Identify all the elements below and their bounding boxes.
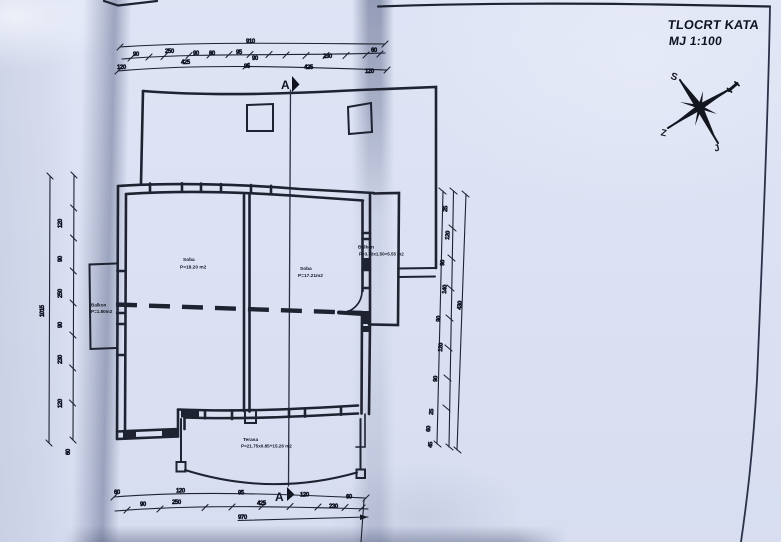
svg-text:Soba: Soba [183, 257, 195, 263]
svg-text:TLOCRT KATA: TLOCRT KATA [667, 17, 760, 32]
svg-text:A: A [281, 78, 290, 92]
svg-text:120: 120 [300, 493, 310, 499]
svg-text:MJ 1:100: MJ 1:100 [668, 34, 723, 48]
svg-text:90: 90 [440, 259, 447, 266]
svg-text:910: 910 [246, 39, 256, 45]
svg-text:J: J [713, 143, 721, 155]
svg-text:140: 140 [442, 284, 449, 294]
svg-text:Balkon: Balkon [91, 303, 107, 308]
svg-text:90: 90 [436, 315, 443, 322]
svg-text:P=17.21m2: P=17.21m2 [298, 273, 323, 279]
svg-text:425: 425 [304, 65, 314, 71]
svg-text:90: 90 [252, 56, 259, 62]
svg-text:60: 60 [209, 51, 216, 57]
svg-text:Soba: Soba [300, 266, 312, 272]
svg-text:120: 120 [58, 398, 64, 408]
svg-text:25: 25 [443, 205, 450, 212]
svg-text:430: 430 [457, 300, 464, 310]
svg-text:250: 250 [58, 288, 64, 298]
svg-text:120: 120 [117, 65, 127, 71]
svg-text:250: 250 [172, 500, 182, 506]
svg-text:45: 45 [428, 441, 435, 448]
svg-text:230: 230 [329, 504, 339, 510]
svg-text:A: A [275, 490, 284, 504]
svg-text:425: 425 [257, 501, 267, 507]
svg-text:425: 425 [181, 60, 191, 66]
svg-text:120: 120 [438, 342, 445, 352]
svg-text:250: 250 [165, 49, 175, 55]
svg-text:230: 230 [58, 354, 64, 364]
svg-text:120: 120 [445, 230, 452, 240]
svg-text:120: 120 [365, 69, 375, 75]
svg-text:90: 90 [58, 255, 64, 262]
svg-text:970: 970 [238, 515, 248, 521]
svg-text:S: S [669, 71, 679, 84]
svg-text:60: 60 [66, 448, 72, 455]
svg-text:Z: Z [660, 127, 668, 139]
svg-text:P=21.75x0.85+15.26 m2: P=21.75x0.85+15.26 m2 [241, 444, 292, 449]
svg-text:P=1.80m2: P=1.80m2 [91, 309, 113, 314]
svg-text:60: 60 [114, 490, 121, 496]
svg-text:120: 120 [58, 218, 64, 228]
svg-text:230: 230 [323, 54, 333, 60]
svg-text:120: 120 [176, 489, 186, 495]
svg-text:90: 90 [58, 321, 64, 328]
svg-text:25: 25 [429, 408, 436, 415]
svg-text:Balkon: Balkon [358, 245, 374, 251]
svg-text:P=3.70x1.50=5.55 m2: P=3.70x1.50=5.55 m2 [359, 252, 404, 257]
svg-text:90: 90 [133, 52, 140, 58]
svg-text:1015: 1015 [40, 304, 46, 317]
svg-text:90: 90 [140, 502, 147, 508]
svg-text:P=18.20 m2: P=18.20 m2 [180, 265, 207, 271]
svg-text:60: 60 [426, 425, 433, 432]
svg-text:Terasa: Terasa [243, 437, 258, 443]
